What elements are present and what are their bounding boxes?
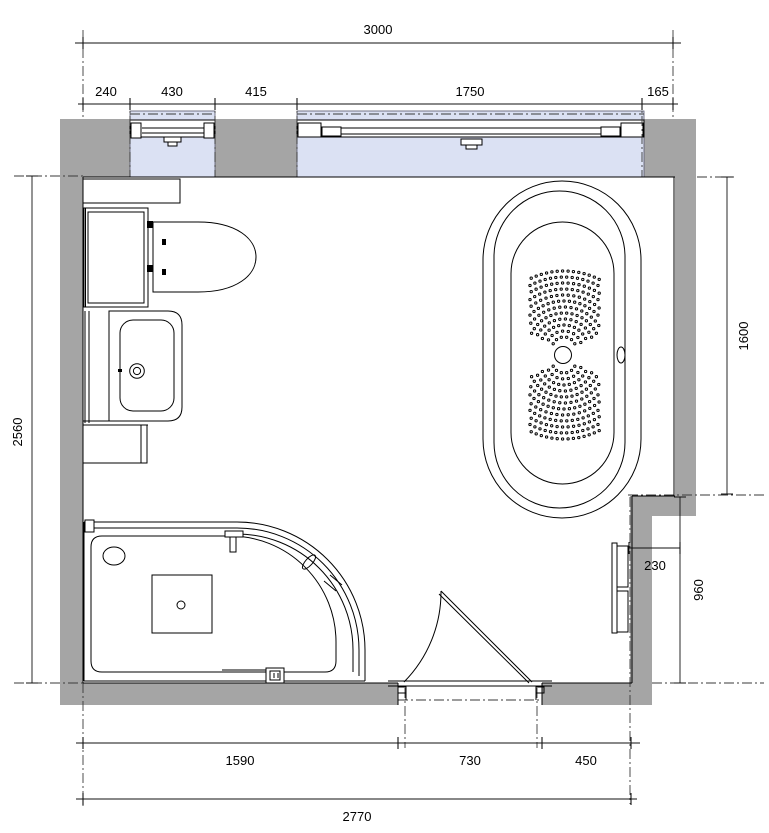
window-handle	[466, 145, 477, 149]
wall-right-upper	[675, 119, 696, 496]
wall-bottom-right	[542, 683, 652, 705]
shower-top-rail	[84, 522, 237, 528]
dim-top-165: 165	[647, 84, 669, 99]
shower-head	[103, 547, 125, 565]
wall-top-pier-mid	[215, 119, 297, 177]
dim-left-overall: 2560	[10, 418, 25, 447]
dim-top-240: 240	[95, 84, 117, 99]
window-2	[297, 111, 644, 177]
window-frame-cap	[298, 123, 321, 137]
rail-end-block	[85, 520, 94, 532]
wall-top-pier-left	[60, 119, 130, 177]
tub-outer-rim	[483, 181, 641, 518]
shower-tray	[91, 536, 336, 672]
seat-hinge	[162, 269, 166, 275]
window-handle	[164, 137, 181, 142]
toilet-connector	[147, 221, 153, 228]
toilet-connector	[147, 265, 153, 272]
dim-top-415: 415	[245, 84, 267, 99]
toilet	[84, 208, 256, 307]
floor-plan-drawing: 3000 240 430 415 1750 165 2560 1600 960 …	[0, 0, 769, 833]
dim-bottom-1590: 1590	[226, 753, 255, 768]
dim-top-1750: 1750	[456, 84, 485, 99]
window-handle	[461, 139, 482, 145]
corner-shower	[84, 520, 365, 683]
shower-tray-edge	[84, 522, 365, 681]
basin-overflow	[118, 369, 122, 372]
wall-left	[60, 119, 83, 705]
wall-shelf	[83, 179, 180, 203]
window-frame-cap	[621, 123, 643, 137]
dim-bottom-overall: 2770	[343, 809, 372, 824]
cistern-cabinet	[84, 208, 148, 307]
bathroom-floor-plan: 3000 240 430 415 1750 165 2560 1600 960 …	[0, 0, 769, 833]
door-handle	[230, 537, 236, 552]
shower-glass-mid	[237, 528, 359, 676]
door-swing-arc	[404, 591, 441, 682]
window-handle	[168, 142, 177, 146]
seat-hinge	[162, 239, 166, 245]
washbasin-vanity	[83, 311, 182, 425]
door-leaf	[439, 591, 532, 683]
toilet-bowl	[153, 222, 256, 292]
whirlpool-bathtub	[483, 181, 641, 518]
door	[388, 591, 552, 700]
wall-right-lower	[630, 496, 652, 705]
dim-top-430: 430	[161, 84, 183, 99]
window-1	[130, 111, 215, 177]
dim-bottom-450: 450	[575, 753, 597, 768]
dim-top-overall: 3000	[364, 22, 393, 37]
shower-floor-panel	[152, 575, 212, 633]
window-frame-cap	[204, 123, 214, 138]
window-frame-cap	[131, 123, 141, 138]
drain	[177, 601, 185, 609]
base-cabinet	[83, 425, 147, 463]
dim-bottom-730: 730	[459, 753, 481, 768]
door-latch	[266, 668, 284, 683]
dim-step-230: 230	[644, 558, 666, 573]
dim-right-960: 960	[691, 579, 706, 601]
window-frame-mullion	[601, 127, 620, 136]
curved-door-handle	[300, 553, 317, 571]
radiator	[612, 543, 628, 633]
door-hatch-marks	[324, 575, 342, 591]
dim-right-1600: 1600	[736, 322, 751, 351]
wall-bottom-left	[60, 683, 398, 705]
door-handle	[225, 531, 243, 537]
window-frame-mullion	[322, 127, 341, 136]
